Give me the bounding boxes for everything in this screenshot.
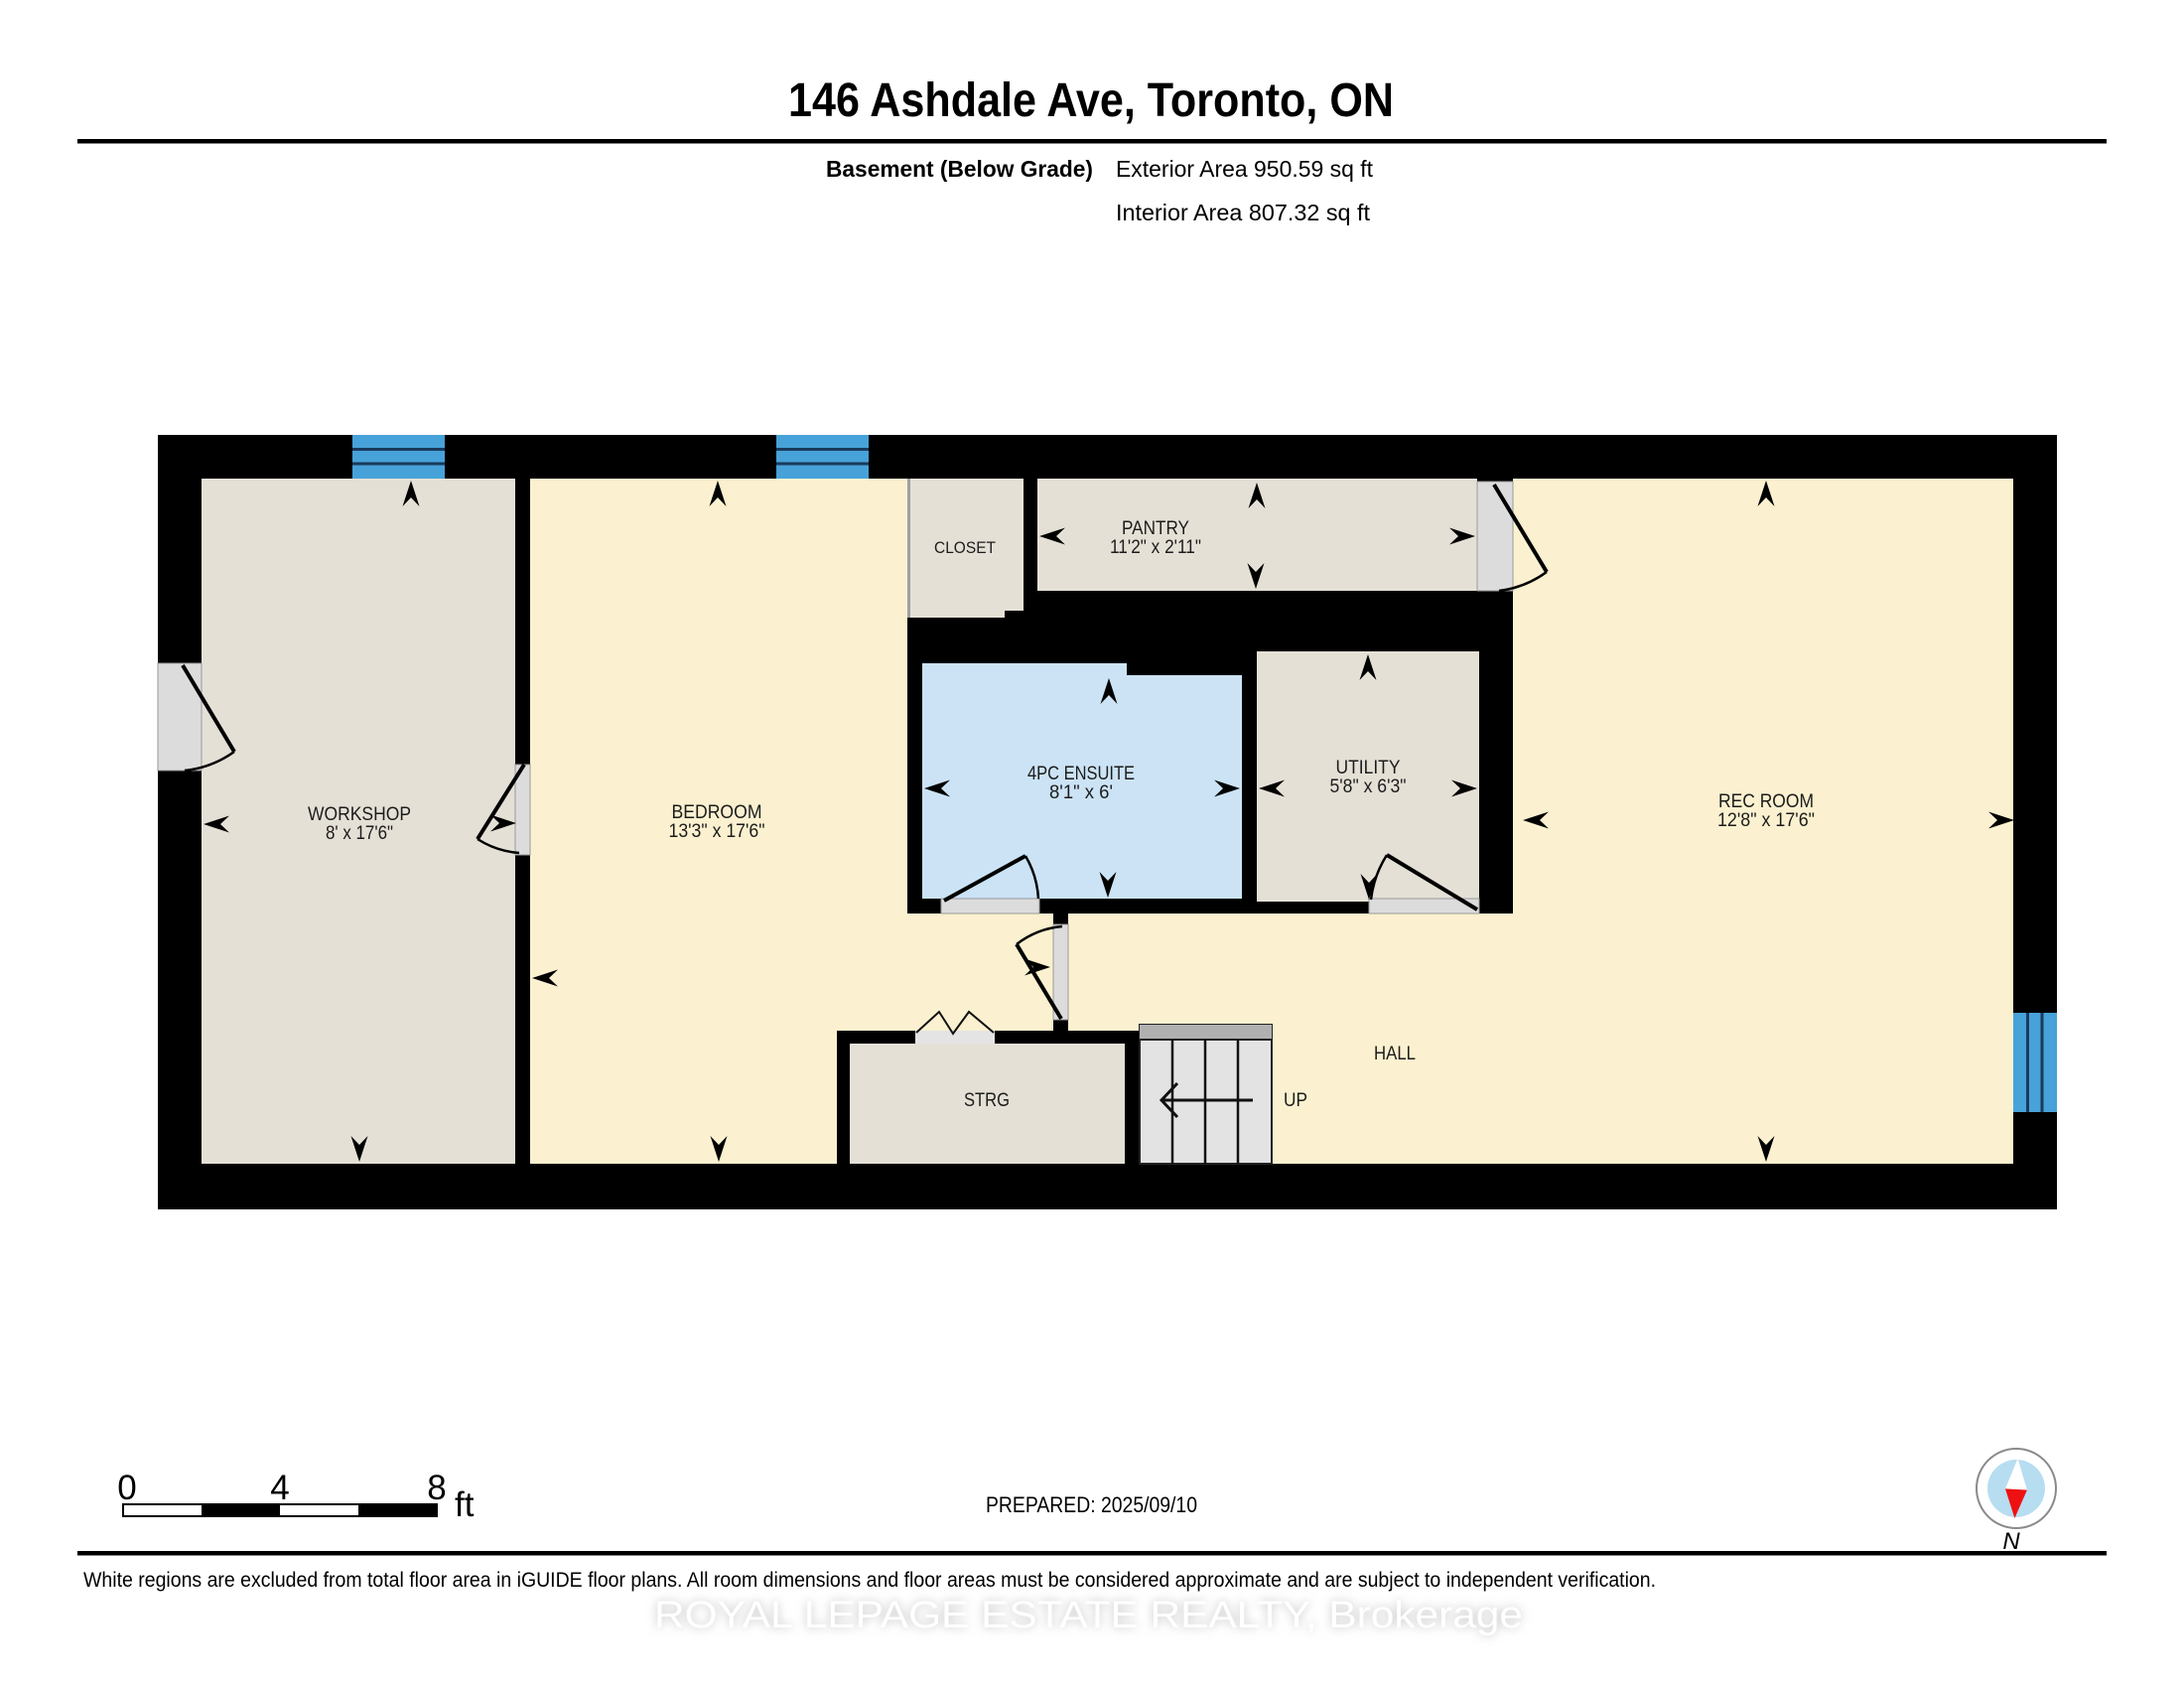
svg-text:8'1" x 6': 8'1" x 6': [1049, 781, 1113, 803]
svg-text:8' x 17'6": 8' x 17'6": [326, 822, 393, 844]
svg-text:CLOSET: CLOSET: [934, 539, 996, 557]
svg-text:N: N: [2002, 1528, 2020, 1555]
svg-text:HALL: HALL: [1374, 1043, 1416, 1064]
svg-text:STRG: STRG: [964, 1089, 1010, 1111]
svg-text:White regions are excluded fro: White regions are excluded from total fl…: [83, 1568, 1656, 1592]
svg-text:4: 4: [270, 1469, 289, 1507]
svg-text:ROYAL LEPAGE ESTATE REALTY, Br: ROYAL LEPAGE ESTATE REALTY, Brokerage: [654, 1595, 1523, 1636]
svg-text:0: 0: [117, 1469, 136, 1507]
svg-text:11'2" x 2'11": 11'2" x 2'11": [1110, 536, 1201, 558]
svg-text:12'8" x 17'6": 12'8" x 17'6": [1717, 809, 1815, 831]
svg-text:8: 8: [427, 1469, 446, 1507]
svg-text:Basement (Below Grade): Basement (Below Grade): [826, 156, 1093, 182]
svg-text:Interior Area 807.32 sq ft: Interior Area 807.32 sq ft: [1116, 200, 1371, 225]
svg-text:Exterior Area 950.59 sq ft: Exterior Area 950.59 sq ft: [1116, 156, 1374, 182]
svg-text:ft: ft: [455, 1485, 475, 1524]
svg-text:5'8" x 6'3": 5'8" x 6'3": [1330, 775, 1407, 797]
svg-text:PREPARED: 2025/09/10: PREPARED: 2025/09/10: [986, 1492, 1197, 1517]
svg-text:13'3" x 17'6": 13'3" x 17'6": [669, 820, 765, 842]
svg-text:146 Ashdale Ave, Toronto, ON: 146 Ashdale Ave, Toronto, ON: [788, 74, 1394, 127]
svg-text:UP: UP: [1284, 1089, 1307, 1111]
